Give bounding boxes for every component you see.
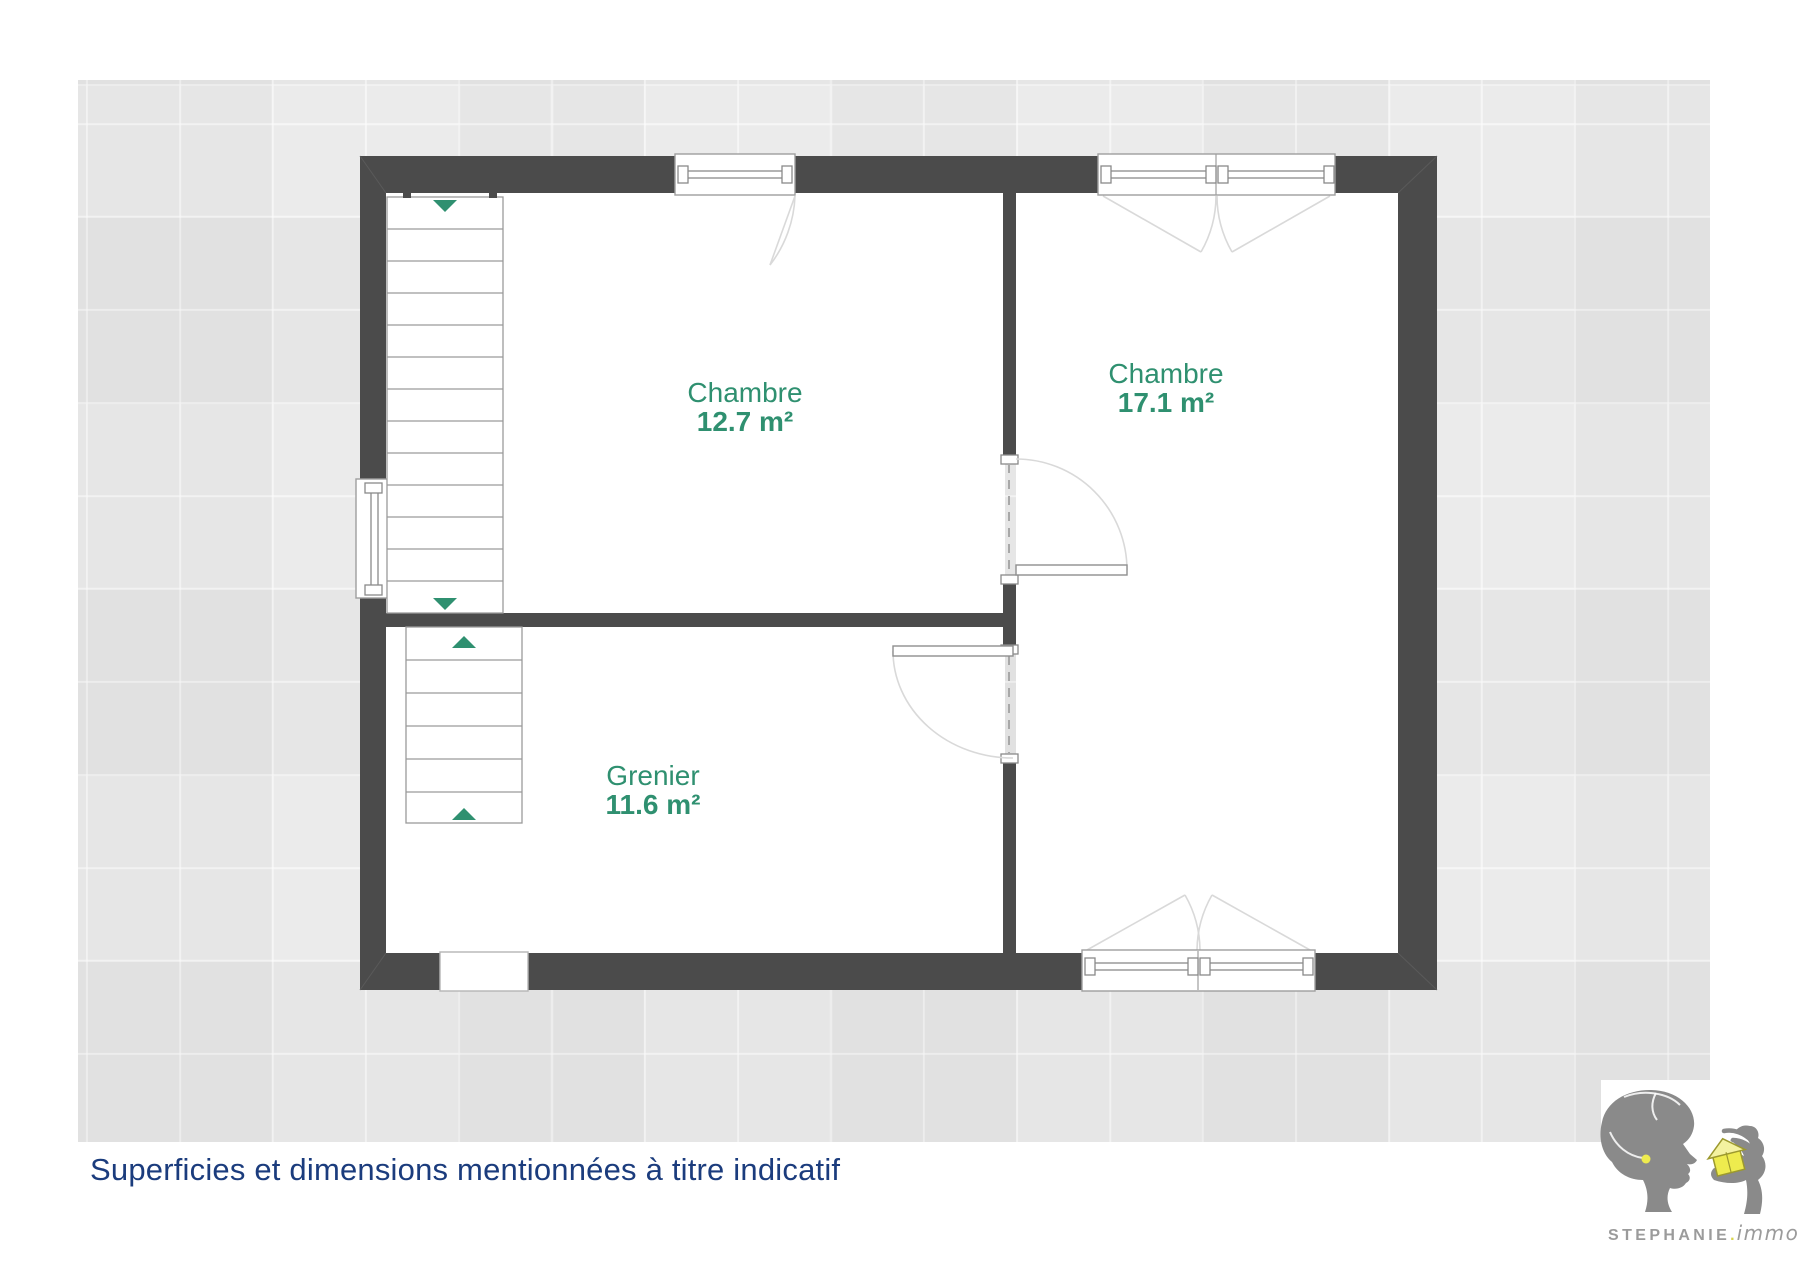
room-area: 12.7 m² [687,407,802,436]
floor-plan-drawing [0,0,1800,1273]
staircase-outline [406,627,522,823]
room-name: Chambre [1108,359,1223,388]
room-name: Grenier [606,761,701,790]
staircase-outline [387,197,503,613]
wall-interior-vertical-lower [1003,763,1016,953]
window-left [356,479,389,598]
window-hinge [1188,958,1198,975]
wall-recess-opening [440,952,528,991]
room-label-grenier: Grenier 11.6 m² [606,761,701,819]
room-label-chambre-1: Chambre 12.7 m² [687,378,802,436]
window-hinge [1101,166,1111,183]
window-hinge [1218,166,1228,183]
logo-separator: . [1730,1227,1734,1244]
logo-woman-silhouette [1600,1090,1697,1212]
window-glazing [1205,963,1307,970]
staircase-upper [387,192,503,613]
window-hinge [1324,166,1334,183]
window-glazing [1222,171,1327,178]
stair-post [489,192,497,198]
logo-brand: STEPHANIE [1608,1227,1730,1244]
room-label-chambre-2: Chambre 17.1 m² [1108,359,1223,417]
window-hinge [1303,958,1313,975]
wall-interior-vertical-upper [1003,193,1016,455]
window-hinge [365,585,382,595]
stair-post [403,192,411,198]
window-glazing [371,489,378,589]
logo-suffix: immo [1737,1221,1800,1245]
window-hinge [1200,958,1210,975]
window-hinge [1206,166,1216,183]
window-hinge [678,166,688,183]
window-hinge [365,483,382,493]
wall-right [1398,156,1437,990]
earring-icon [1642,1155,1651,1164]
room-area: 11.6 m² [606,790,701,819]
window-glazing [1090,963,1192,970]
agency-logo [1600,1080,1765,1214]
door-leaf [893,646,1013,656]
page: Chambre 12.7 m² Chambre 17.1 m² Grenier … [0,0,1800,1273]
door-jamb [1001,575,1018,584]
staircase-lower [406,627,522,823]
room-area: 17.1 m² [1108,388,1223,417]
room-interiors [386,193,1398,953]
door-leaf [1016,565,1127,575]
disclaimer-caption: Superficies et dimensions mentionnées à … [90,1152,840,1188]
wall-interior-horizontal [360,613,1016,627]
logo-wordmark: STEPHANIE.immo [1608,1221,1799,1245]
room-name: Chambre [687,378,802,407]
window-glazing [1106,171,1210,178]
door-jamb [1001,455,1018,464]
window-hinge [782,166,792,183]
window-hinge [1085,958,1095,975]
window-glazing [683,171,787,178]
